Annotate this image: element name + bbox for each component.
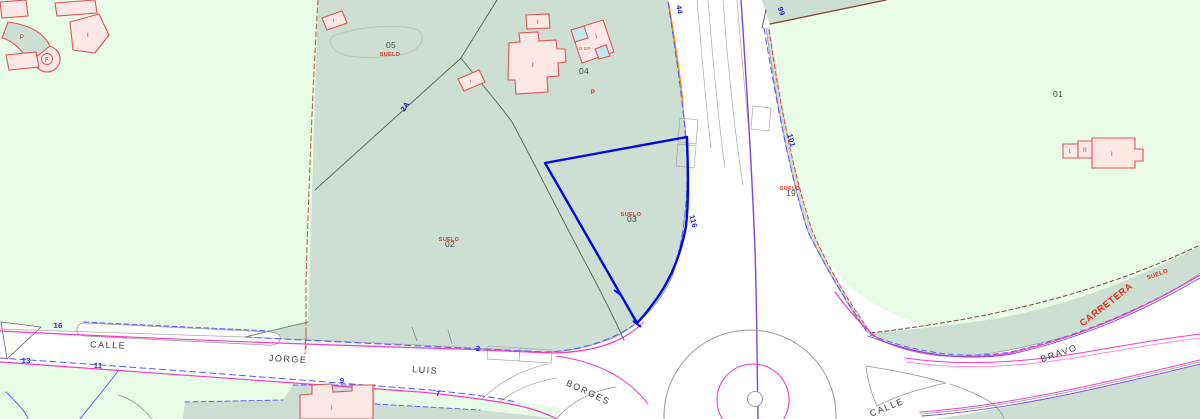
building-topleft-a <box>0 0 28 18</box>
street-jorge: JORGE <box>269 353 308 365</box>
addr-7: 7 <box>436 389 441 398</box>
addr-16: 16 <box>53 321 62 330</box>
bldg-label-bottom: I <box>331 406 333 412</box>
bldg-label-dep: D EP <box>579 46 591 51</box>
parcel-number-01: 01 <box>1053 89 1063 99</box>
addr-9: 9 <box>340 376 345 385</box>
parcel-number-04: 04 <box>579 66 589 76</box>
street-luis: LUIS <box>412 364 439 376</box>
cadastral-map-canvas[interactable]: CALLEJORGELUISBORGESCALLEBRAVOCARRETERAS… <box>0 0 1200 419</box>
suelo-05: SUELO <box>380 52 401 58</box>
building-topleft-d <box>6 52 39 70</box>
bldg-label-01c: I <box>1111 152 1113 158</box>
bldg-label-fan: P <box>20 35 24 41</box>
street-calle: CALLE <box>90 339 126 350</box>
roundabout-center-circle <box>748 392 763 407</box>
bldg-label-01a: I <box>1069 149 1071 155</box>
cadastral-map[interactable]: CALLEJORGELUISBORGESCALLEBRAVOCARRETERAS… <box>0 0 1200 419</box>
bldg-label-p04: P <box>591 90 595 96</box>
building-01-c <box>1092 138 1143 168</box>
suelo-03: SUELO <box>621 212 642 218</box>
addr-2: 2 <box>476 344 481 353</box>
bldg-label-04annex: I <box>537 20 539 26</box>
bldg-label-tlc: I <box>87 33 89 39</box>
bldg-label-ring: F <box>45 58 49 64</box>
addr-11: 11 <box>94 361 103 370</box>
bldg-label-01b: II <box>1083 148 1087 154</box>
addr-13: 13 <box>21 356 30 365</box>
building-topleft-b <box>55 0 97 16</box>
suelo-19: SUELO <box>780 186 801 192</box>
bldg-label-04main: I <box>532 63 534 69</box>
parcel-number-05: 05 <box>386 40 396 50</box>
suelo-02: SUELO <box>439 237 460 243</box>
